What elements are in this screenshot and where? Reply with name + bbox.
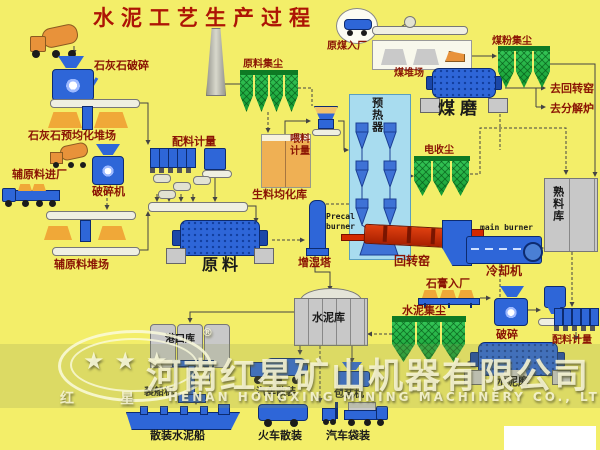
loader-trolley bbox=[178, 394, 206, 403]
dosing-silo bbox=[186, 148, 196, 168]
rotary-kiln-label: 回转窑 bbox=[394, 255, 430, 269]
support-block bbox=[488, 98, 508, 113]
tank-body bbox=[264, 358, 308, 376]
coal-mill-label: 煤磨 bbox=[438, 100, 482, 120]
coal-dust-collector-icon bbox=[498, 46, 550, 88]
feeder-roller bbox=[158, 190, 176, 199]
feeder-table bbox=[312, 129, 341, 136]
wheel bbox=[348, 419, 355, 426]
gypsum-crusher-icon bbox=[492, 286, 530, 328]
raw-dust-collector-icon bbox=[240, 70, 298, 112]
feed-hopper bbox=[314, 106, 338, 120]
crusher-funnel bbox=[58, 56, 84, 68]
raw-dust-collector-label: 原料集尘 bbox=[243, 59, 283, 71]
mixer-drum bbox=[59, 141, 90, 161]
support-block bbox=[254, 248, 274, 264]
crusher-funnel bbox=[96, 144, 120, 155]
cargo-pile bbox=[18, 184, 32, 191]
cement-process-diagram: 水泥工艺生产过程 石灰石破碎 石灰石预均化堆场 原料集尘 辅原料进厂 bbox=[0, 0, 600, 450]
dosing-silo bbox=[581, 308, 590, 326]
loader-icon bbox=[445, 51, 465, 62]
blank-corner-box bbox=[504, 426, 596, 450]
mixer-drum bbox=[40, 22, 79, 49]
bulk-truck-icon bbox=[250, 356, 308, 386]
packer-label: 包装机 bbox=[334, 389, 364, 401]
wheel bbox=[290, 419, 298, 427]
humidifier-tower-icon bbox=[306, 198, 328, 256]
cooler-label: 冷却机 bbox=[486, 265, 522, 279]
gypsum-pile bbox=[458, 290, 474, 298]
batching-feed-silo-icon bbox=[204, 148, 226, 170]
aux-crusher-icon bbox=[92, 144, 124, 186]
clinker-cooler-icon bbox=[466, 236, 542, 264]
coal-pile bbox=[381, 49, 407, 65]
bag-truck-label: 汽车袋装 bbox=[326, 430, 370, 443]
cooler-drive-wheel bbox=[523, 242, 543, 262]
precal-burner-label: Precal burner bbox=[326, 212, 374, 231]
ship-loader-label: 装船机 bbox=[144, 387, 174, 399]
wheel bbox=[347, 30, 353, 36]
conveyor bbox=[46, 211, 136, 220]
crusher-body bbox=[92, 156, 124, 185]
filter-pod bbox=[534, 51, 550, 88]
filter-pod bbox=[417, 322, 440, 362]
wheel bbox=[32, 50, 40, 58]
esp-label: 电收尘 bbox=[424, 145, 454, 157]
limestone-crusher-icon bbox=[48, 56, 96, 102]
loader-cable bbox=[209, 365, 210, 383]
deck-post bbox=[180, 406, 188, 415]
bag-truck-forklift-icon bbox=[322, 400, 386, 428]
feeder-roller bbox=[173, 182, 191, 191]
conveyor-pulley bbox=[404, 16, 416, 28]
support-block bbox=[166, 248, 186, 264]
silo-gates bbox=[150, 168, 194, 173]
kiln-tyre bbox=[383, 226, 388, 242]
loader-cable bbox=[174, 365, 175, 383]
cargo-pile bbox=[32, 184, 46, 191]
dosing-silo bbox=[572, 308, 581, 326]
crusher-body bbox=[52, 69, 94, 101]
stockpile bbox=[44, 226, 72, 240]
support-block bbox=[464, 370, 483, 385]
gypsum-pile bbox=[422, 290, 438, 298]
feeder-roller bbox=[153, 174, 171, 183]
stockpile bbox=[94, 112, 128, 128]
loader-mast bbox=[188, 365, 195, 397]
coal-yard-label: 煤堆场 bbox=[394, 68, 424, 80]
wheel bbox=[361, 30, 367, 36]
wheel bbox=[330, 419, 336, 425]
cement-dust-collector-label: 水泥集尘 bbox=[402, 305, 446, 318]
cement-dust-collector-icon bbox=[392, 316, 466, 362]
wheel bbox=[49, 200, 56, 207]
wheel bbox=[364, 419, 371, 426]
filter-pod bbox=[516, 51, 532, 88]
dosing-silo bbox=[563, 308, 572, 326]
stockpile bbox=[48, 112, 82, 128]
preheater-label: 预热器 bbox=[370, 97, 383, 133]
feeder-body bbox=[318, 119, 334, 129]
wheel bbox=[36, 200, 43, 207]
crusher-body bbox=[494, 298, 528, 326]
deck-post bbox=[160, 406, 168, 415]
stacker-reclaimer bbox=[82, 106, 93, 130]
limestone-crusher-label: 石灰石破碎 bbox=[94, 60, 149, 73]
cement-mill-label: 水泥磨 bbox=[496, 376, 529, 389]
wheel bbox=[264, 419, 272, 427]
gypsum-pile bbox=[440, 290, 456, 298]
clinker-silo-label: 熟料库 bbox=[551, 186, 564, 222]
deck-post bbox=[200, 406, 208, 415]
aux-entry-label: 辅原料进厂 bbox=[12, 169, 67, 182]
bridge-house bbox=[218, 404, 230, 415]
cement-batching-label: 配料计量 bbox=[552, 335, 592, 347]
rail-wagon-icon bbox=[256, 404, 308, 428]
filter-pod bbox=[452, 161, 469, 196]
filter-pod bbox=[414, 161, 431, 196]
limestone-preblending-piles-icon bbox=[44, 104, 140, 130]
filter-pod bbox=[498, 51, 514, 88]
coal-entry-label: 原煤入厂 bbox=[327, 41, 367, 53]
homogenization-silo-label: 生料均化库 bbox=[252, 189, 307, 202]
wheel bbox=[22, 200, 29, 207]
stacker-reclaimer bbox=[80, 220, 91, 242]
to-rotary-kiln-label: 去回转窑 bbox=[550, 83, 594, 96]
wheel bbox=[80, 162, 86, 168]
kiln-tyre bbox=[407, 227, 412, 243]
page-title: 水泥工艺生产过程 bbox=[93, 2, 317, 32]
coal-entry-crusher-icon bbox=[336, 8, 378, 44]
aux-crusher-label: 破碎机 bbox=[92, 186, 125, 199]
aux-flatbed-truck-icon bbox=[2, 184, 62, 210]
bulk-truck-label: 汽车散装 bbox=[256, 387, 296, 399]
wheel bbox=[292, 376, 300, 384]
filter-pod bbox=[285, 75, 298, 112]
packer-hopper bbox=[342, 362, 362, 370]
dosing-silo bbox=[590, 308, 599, 326]
feed-metering-device-icon bbox=[312, 106, 340, 136]
collector-header bbox=[414, 156, 470, 161]
cement-batching-silos-icon bbox=[554, 308, 598, 334]
mill-shell bbox=[432, 68, 496, 98]
wheel bbox=[274, 376, 282, 384]
conveyor bbox=[148, 202, 248, 212]
grate-line bbox=[471, 248, 527, 250]
silo-gates bbox=[554, 326, 597, 331]
humidifier-tower-label: 增湿塔 bbox=[298, 257, 331, 270]
silo-body bbox=[544, 286, 566, 308]
conveyor bbox=[52, 247, 140, 256]
wheel bbox=[323, 419, 329, 425]
raw-mill-label: 原料 bbox=[202, 256, 242, 274]
bulk-ship-label: 散装水泥船 bbox=[150, 430, 205, 443]
filter-pod bbox=[433, 161, 450, 196]
support-block bbox=[552, 370, 571, 385]
bulk-ship-icon bbox=[126, 404, 238, 428]
batching-label: 配料计量 bbox=[172, 136, 216, 149]
platform-leg bbox=[470, 303, 472, 308]
gypsum-entry-label: 石膏入厂 bbox=[426, 278, 470, 291]
tower-base bbox=[306, 248, 329, 256]
port-silo-label: 港口库 bbox=[165, 334, 195, 346]
gypsum-crusher-label: 破碎 bbox=[496, 329, 518, 342]
feed-metering-label: 喂料计量 bbox=[290, 134, 313, 157]
crusher-drum bbox=[344, 19, 372, 30]
to-calciner-label: 去分解炉 bbox=[550, 103, 594, 116]
mill-shell bbox=[180, 220, 260, 256]
filter-pod bbox=[270, 75, 283, 112]
train-bulk-label: 火车散装 bbox=[258, 430, 302, 443]
aux-stockpiles-icon bbox=[44, 220, 136, 244]
filter-pod bbox=[240, 75, 253, 112]
feeder-roller bbox=[193, 176, 211, 185]
collector-header bbox=[240, 70, 298, 75]
aux-yard-label: 辅原料堆场 bbox=[54, 259, 109, 272]
coal-dust-collector-label: 煤粉集尘 bbox=[492, 36, 532, 48]
platform-leg bbox=[448, 303, 450, 308]
support-block bbox=[420, 98, 440, 113]
main-burner-label: main burner bbox=[480, 223, 533, 233]
wheel bbox=[377, 419, 384, 426]
kiln-tyre bbox=[431, 228, 436, 244]
wheel bbox=[254, 376, 262, 384]
silo-divider bbox=[285, 141, 286, 187]
limestone-yard-label: 石灰石预均化堆场 bbox=[28, 130, 116, 143]
wheel bbox=[5, 200, 12, 207]
filter-pod bbox=[255, 75, 268, 112]
cement-silo-label: 水泥库 bbox=[312, 312, 345, 325]
packer-icon bbox=[330, 362, 374, 392]
limestone-mixer-truck-icon bbox=[28, 24, 84, 60]
forklift-mast bbox=[335, 402, 338, 419]
dosing-silo bbox=[554, 308, 563, 326]
stockpile bbox=[98, 226, 126, 240]
esp-icon bbox=[414, 156, 470, 196]
wheel bbox=[68, 162, 74, 168]
aux-mixer-truck-icon bbox=[50, 144, 92, 170]
filter-pod bbox=[392, 322, 415, 362]
deck-post bbox=[140, 406, 148, 415]
coal-conveyor bbox=[372, 26, 468, 35]
truck-cab bbox=[376, 406, 388, 420]
coal-pile bbox=[413, 49, 439, 65]
crusher-funnel bbox=[500, 286, 524, 297]
tower-column bbox=[309, 200, 326, 252]
truck-cab bbox=[250, 362, 266, 377]
